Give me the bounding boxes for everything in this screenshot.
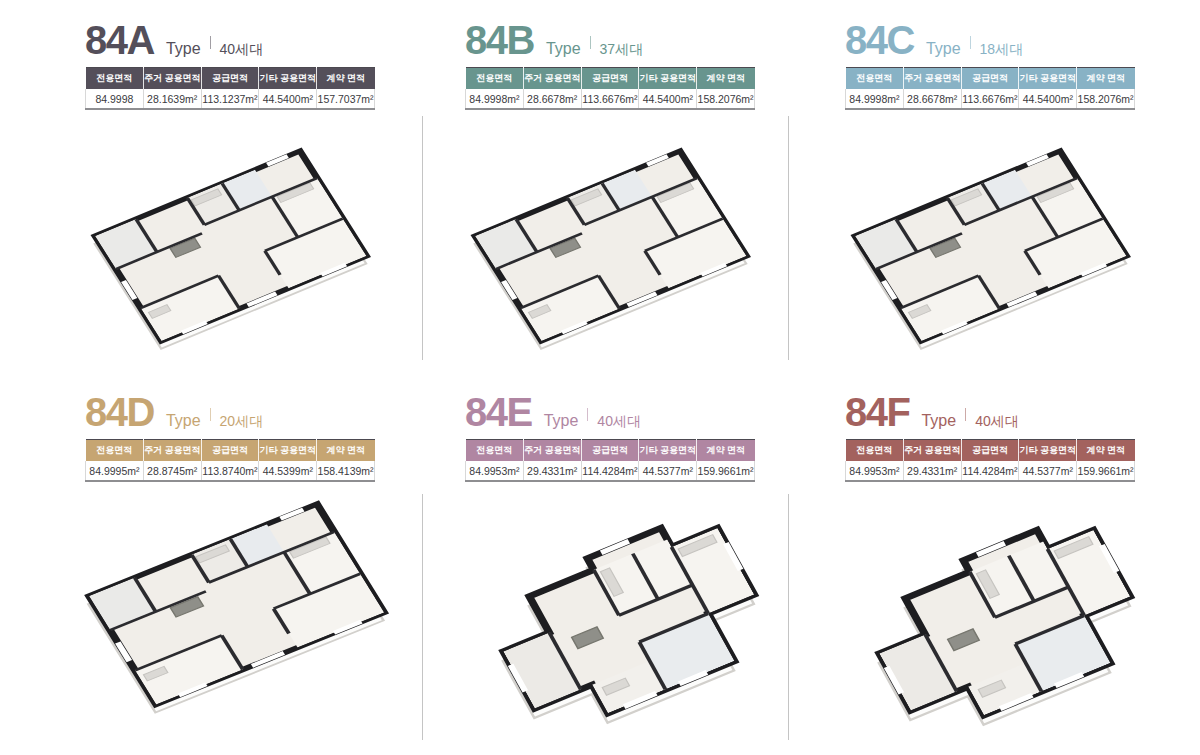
value-contract-area: 157.7037m² bbox=[317, 89, 375, 109]
header-contract-area: 계약 면적 bbox=[697, 68, 755, 90]
unit-section-84e: 84E Type 40세대 전용면적 주거 공용면적 공급면적 기타 공용면적 … bbox=[465, 392, 755, 482]
value-supply-area: 113.8740m² bbox=[201, 461, 259, 481]
unit-section-84b: 84B Type 37세대 전용면적 주거 공용면적 공급면적 기타 공용면적 … bbox=[465, 20, 755, 110]
header-residential-common-area: 주거 공용면적 bbox=[143, 68, 201, 90]
area-table-header-row: 전용면적 주거 공용면적 공급면적 기타 공용면적 계약 면적 bbox=[86, 68, 375, 90]
value-other-common-area: 44.5400m² bbox=[259, 89, 317, 109]
value-contract-area: 158.2076m² bbox=[1077, 89, 1135, 109]
floorplan-84e-image bbox=[461, 496, 781, 755]
value-supply-area: 113.6676m² bbox=[581, 89, 639, 109]
header-other-common-area: 기타 공용면적 bbox=[259, 440, 317, 462]
title-separator bbox=[210, 36, 211, 49]
type-label: Type bbox=[166, 412, 201, 430]
header-exclusive-area: 전용면적 bbox=[846, 440, 904, 462]
floorplan-84d-image bbox=[81, 496, 401, 755]
unit-title-84c: 84C Type 18세대 bbox=[845, 20, 1135, 60]
header-residential-common-area: 주거 공용면적 bbox=[143, 440, 201, 462]
area-table-header-row: 전용면적 주거 공용면적 공급면적 기타 공용면적 계약 면적 bbox=[466, 440, 755, 462]
area-table-84d: 전용면적 주거 공용면적 공급면적 기타 공용면적 계약 면적 84.9995m… bbox=[85, 439, 375, 482]
header-contract-area: 계약 면적 bbox=[697, 440, 755, 462]
value-other-common-area: 44.5399m² bbox=[259, 461, 317, 481]
unit-title-84b: 84B Type 37세대 bbox=[465, 20, 755, 60]
header-residential-common-area: 주거 공용면적 bbox=[903, 68, 961, 90]
type-label: Type bbox=[166, 40, 201, 58]
households-label: 40세대 bbox=[220, 41, 264, 59]
unit-title-84f: 84F Type 40세대 bbox=[845, 392, 1135, 432]
column-divider bbox=[422, 116, 423, 360]
value-other-common-area: 44.5400m² bbox=[1019, 89, 1077, 109]
floorplan-84b-image bbox=[461, 144, 781, 406]
floorplan-84c-image bbox=[841, 144, 1161, 406]
unit-section-84d: 84D Type 20세대 전용면적 주거 공용면적 공급면적 기타 공용면적 … bbox=[85, 392, 375, 482]
unit-code: 84C bbox=[845, 20, 914, 60]
value-exclusive-area: 84.9998m² bbox=[846, 89, 904, 109]
header-other-common-area: 기타 공용면적 bbox=[639, 68, 697, 90]
header-supply-area: 공급면적 bbox=[201, 440, 259, 462]
value-supply-area: 114.4284m² bbox=[581, 461, 639, 481]
column-divider bbox=[788, 116, 789, 360]
type-label: Type bbox=[926, 40, 961, 58]
type-label: Type bbox=[921, 412, 956, 430]
header-contract-area: 계약 면적 bbox=[317, 68, 375, 90]
unit-title-84d: 84D Type 20세대 bbox=[85, 392, 375, 432]
title-separator bbox=[970, 36, 971, 49]
area-table-84a: 전용면적 주거 공용면적 공급면적 기타 공용면적 계약 면적 84.9998 … bbox=[85, 67, 375, 110]
value-residential-common-area: 28.6678m² bbox=[903, 89, 961, 109]
floorplan-84f-image bbox=[841, 496, 1161, 755]
value-contract-area: 158.4139m² bbox=[317, 461, 375, 481]
value-other-common-area: 44.5400m² bbox=[639, 89, 697, 109]
floorplan-84a-image bbox=[81, 144, 401, 406]
value-residential-common-area: 28.6678m² bbox=[523, 89, 581, 109]
value-residential-common-area: 28.8745m² bbox=[143, 461, 201, 481]
value-residential-common-area: 29.4331m² bbox=[903, 461, 961, 481]
type-label: Type bbox=[546, 40, 581, 58]
unit-code: 84A bbox=[85, 20, 154, 60]
households-label: 37세대 bbox=[600, 41, 644, 59]
value-exclusive-area: 84.9953m² bbox=[846, 461, 904, 481]
area-values-row: 84.9995m² 28.8745m² 113.8740m² 44.5399m²… bbox=[86, 461, 375, 481]
unit-title-84e: 84E Type 40세대 bbox=[465, 392, 755, 432]
header-other-common-area: 기타 공용면적 bbox=[259, 68, 317, 90]
area-values-row: 84.9998m² 28.6678m² 113.6676m² 44.5400m²… bbox=[846, 89, 1135, 109]
value-other-common-area: 44.5377m² bbox=[639, 461, 697, 481]
header-supply-area: 공급면적 bbox=[961, 440, 1019, 462]
header-supply-area: 공급면적 bbox=[581, 68, 639, 90]
area-table-84e: 전용면적 주거 공용면적 공급면적 기타 공용면적 계약 면적 84.9953m… bbox=[465, 439, 755, 482]
header-other-common-area: 기타 공용면적 bbox=[1019, 68, 1077, 90]
header-exclusive-area: 전용면적 bbox=[466, 68, 524, 90]
header-exclusive-area: 전용면적 bbox=[86, 440, 144, 462]
area-table-84f: 전용면적 주거 공용면적 공급면적 기타 공용면적 계약 면적 84.9953m… bbox=[845, 439, 1135, 482]
area-table-header-row: 전용면적 주거 공용면적 공급면적 기타 공용면적 계약 면적 bbox=[466, 68, 755, 90]
header-exclusive-area: 전용면적 bbox=[86, 68, 144, 90]
households-label: 40세대 bbox=[597, 413, 641, 431]
unit-section-84c: 84C Type 18세대 전용면적 주거 공용면적 공급면적 기타 공용면적 … bbox=[845, 20, 1135, 110]
header-contract-area: 계약 면적 bbox=[317, 440, 375, 462]
value-supply-area: 113.1237m² bbox=[201, 89, 259, 109]
value-residential-common-area: 29.4331m² bbox=[523, 461, 581, 481]
brochure-page: 84A Type 40세대 전용면적 주거 공용면적 공급면적 기타 공용면적 … bbox=[0, 0, 1200, 755]
households-label: 18세대 bbox=[980, 41, 1024, 59]
header-contract-area: 계약 면적 bbox=[1077, 440, 1135, 462]
area-table-84c: 전용면적 주거 공용면적 공급면적 기타 공용면적 계약 면적 84.9998m… bbox=[845, 67, 1135, 110]
area-table-header-row: 전용면적 주거 공용면적 공급면적 기타 공용면적 계약 면적 bbox=[86, 440, 375, 462]
unit-section-84a: 84A Type 40세대 전용면적 주거 공용면적 공급면적 기타 공용면적 … bbox=[85, 20, 375, 110]
value-contract-area: 159.9661m² bbox=[697, 461, 755, 481]
title-separator bbox=[590, 36, 591, 49]
value-exclusive-area: 84.9995m² bbox=[86, 461, 144, 481]
header-residential-common-area: 주거 공용면적 bbox=[903, 440, 961, 462]
header-supply-area: 공급면적 bbox=[201, 68, 259, 90]
area-table-header-row: 전용면적 주거 공용면적 공급면적 기타 공용면적 계약 면적 bbox=[846, 68, 1135, 90]
area-table-84b: 전용면적 주거 공용면적 공급면적 기타 공용면적 계약 면적 84.9998m… bbox=[465, 67, 755, 110]
header-residential-common-area: 주거 공용면적 bbox=[523, 440, 581, 462]
area-values-row: 84.9998m² 28.6678m² 113.6676m² 44.5400m²… bbox=[466, 89, 755, 109]
area-values-row: 84.9953m² 29.4331m² 114.4284m² 44.5377m²… bbox=[846, 461, 1135, 481]
area-values-row: 84.9953m² 29.4331m² 114.4284m² 44.5377m²… bbox=[466, 461, 755, 481]
unit-code: 84B bbox=[465, 20, 534, 60]
type-label: Type bbox=[544, 412, 579, 430]
unit-code: 84D bbox=[85, 392, 154, 432]
unit-section-84f: 84F Type 40세대 전용면적 주거 공용면적 공급면적 기타 공용면적 … bbox=[845, 392, 1135, 482]
header-supply-area: 공급면적 bbox=[581, 440, 639, 462]
header-residential-common-area: 주거 공용면적 bbox=[523, 68, 581, 90]
header-other-common-area: 기타 공용면적 bbox=[1019, 440, 1077, 462]
unit-title-84a: 84A Type 40세대 bbox=[85, 20, 375, 60]
unit-code: 84F bbox=[845, 392, 909, 432]
value-exclusive-area: 84.9998m² bbox=[466, 89, 524, 109]
column-divider bbox=[788, 494, 789, 740]
households-label: 20세대 bbox=[220, 413, 264, 431]
value-contract-area: 159.9661m² bbox=[1077, 461, 1135, 481]
value-supply-area: 114.4284m² bbox=[961, 461, 1019, 481]
value-exclusive-area: 84.9953m² bbox=[466, 461, 524, 481]
households-label: 40세대 bbox=[975, 413, 1019, 431]
value-exclusive-area: 84.9998 bbox=[86, 89, 144, 109]
title-separator bbox=[587, 408, 588, 421]
value-other-common-area: 44.5377m² bbox=[1019, 461, 1077, 481]
unit-code: 84E bbox=[465, 392, 532, 432]
value-contract-area: 158.2076m² bbox=[697, 89, 755, 109]
header-supply-area: 공급면적 bbox=[961, 68, 1019, 90]
title-separator bbox=[210, 408, 211, 421]
title-separator bbox=[965, 408, 966, 421]
header-other-common-area: 기타 공용면적 bbox=[639, 440, 697, 462]
value-supply-area: 113.6676m² bbox=[961, 89, 1019, 109]
area-values-row: 84.9998 28.1639m² 113.1237m² 44.5400m² 1… bbox=[86, 89, 375, 109]
value-residential-common-area: 28.1639m² bbox=[143, 89, 201, 109]
header-exclusive-area: 전용면적 bbox=[846, 68, 904, 90]
header-exclusive-area: 전용면적 bbox=[466, 440, 524, 462]
column-divider bbox=[422, 494, 423, 740]
header-contract-area: 계약 면적 bbox=[1077, 68, 1135, 90]
area-table-header-row: 전용면적 주거 공용면적 공급면적 기타 공용면적 계약 면적 bbox=[846, 440, 1135, 462]
